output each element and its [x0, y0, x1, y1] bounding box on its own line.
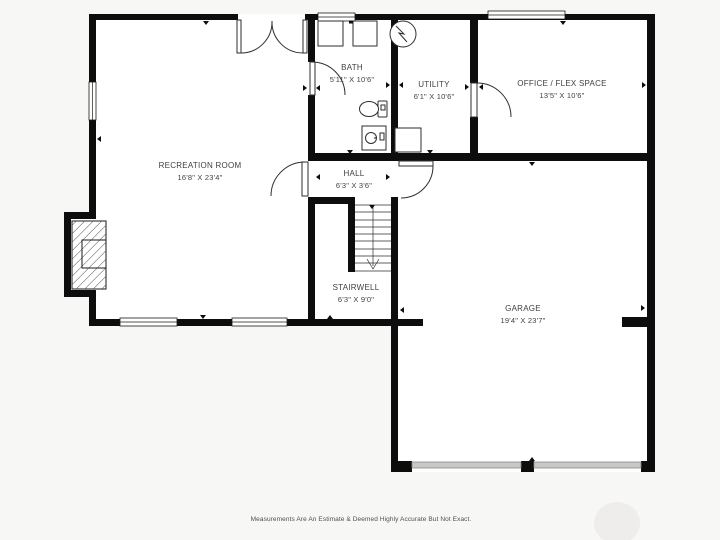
watermark-logo: [594, 502, 640, 540]
window-bath-top: [318, 13, 355, 21]
window-rec-bottom-1: [120, 318, 177, 326]
window-rec-bottom-2: [232, 318, 287, 326]
room-name: GARAGE: [501, 303, 546, 315]
room-dims: 19'4" X 23'7": [501, 315, 546, 326]
room-dims: 6'3" X 3'6": [336, 180, 372, 191]
room-label-hall: HALL 6'3" X 3'6": [336, 168, 372, 191]
fireplace-icon: [72, 221, 106, 289]
measurements-disclaimer: Measurements Are An Estimate & Deemed Hi…: [251, 516, 472, 523]
room-name: OFFICE / FLEX SPACE: [517, 78, 607, 90]
room-dims: 16'8" X 23'4": [159, 172, 242, 183]
room-label-utility: UTILITY 6'1" X 10'6": [414, 79, 455, 102]
room-label-recreation-room: RECREATION ROOM 16'8" X 23'4": [159, 160, 242, 183]
window-left-wall: [89, 82, 96, 120]
room-label-office-flex-space: OFFICE / FLEX SPACE 13'5" X 10'6": [517, 78, 607, 101]
room-name: BATH: [330, 62, 374, 74]
window-office-top: [488, 11, 565, 19]
room-dims: 6'3" X 9'0": [333, 294, 380, 305]
room-name: HALL: [336, 168, 372, 180]
room-dims: 13'5" X 10'6": [517, 90, 607, 101]
room-dims: 6'1" X 10'6": [414, 91, 455, 102]
water-heater-icon: [390, 21, 416, 47]
room-name: STAIRWELL: [333, 282, 380, 294]
toilet-icon: [360, 101, 388, 117]
floor-plan-page: RECREATION ROOM 16'8" X 23'4" BATH 5'11"…: [0, 0, 720, 540]
room-name: RECREATION ROOM: [159, 160, 242, 172]
room-name: UTILITY: [414, 79, 455, 91]
sink-icon: [362, 126, 386, 150]
room-label-bath: BATH 5'11" X 10'6": [330, 62, 374, 85]
room-dims: 5'11" X 10'6": [330, 74, 374, 85]
room-label-garage: GARAGE 19'4" X 23'7": [501, 303, 546, 326]
appliance-box: [395, 128, 421, 152]
room-label-stairwell: STAIRWELL 6'3" X 9'0": [333, 282, 380, 305]
